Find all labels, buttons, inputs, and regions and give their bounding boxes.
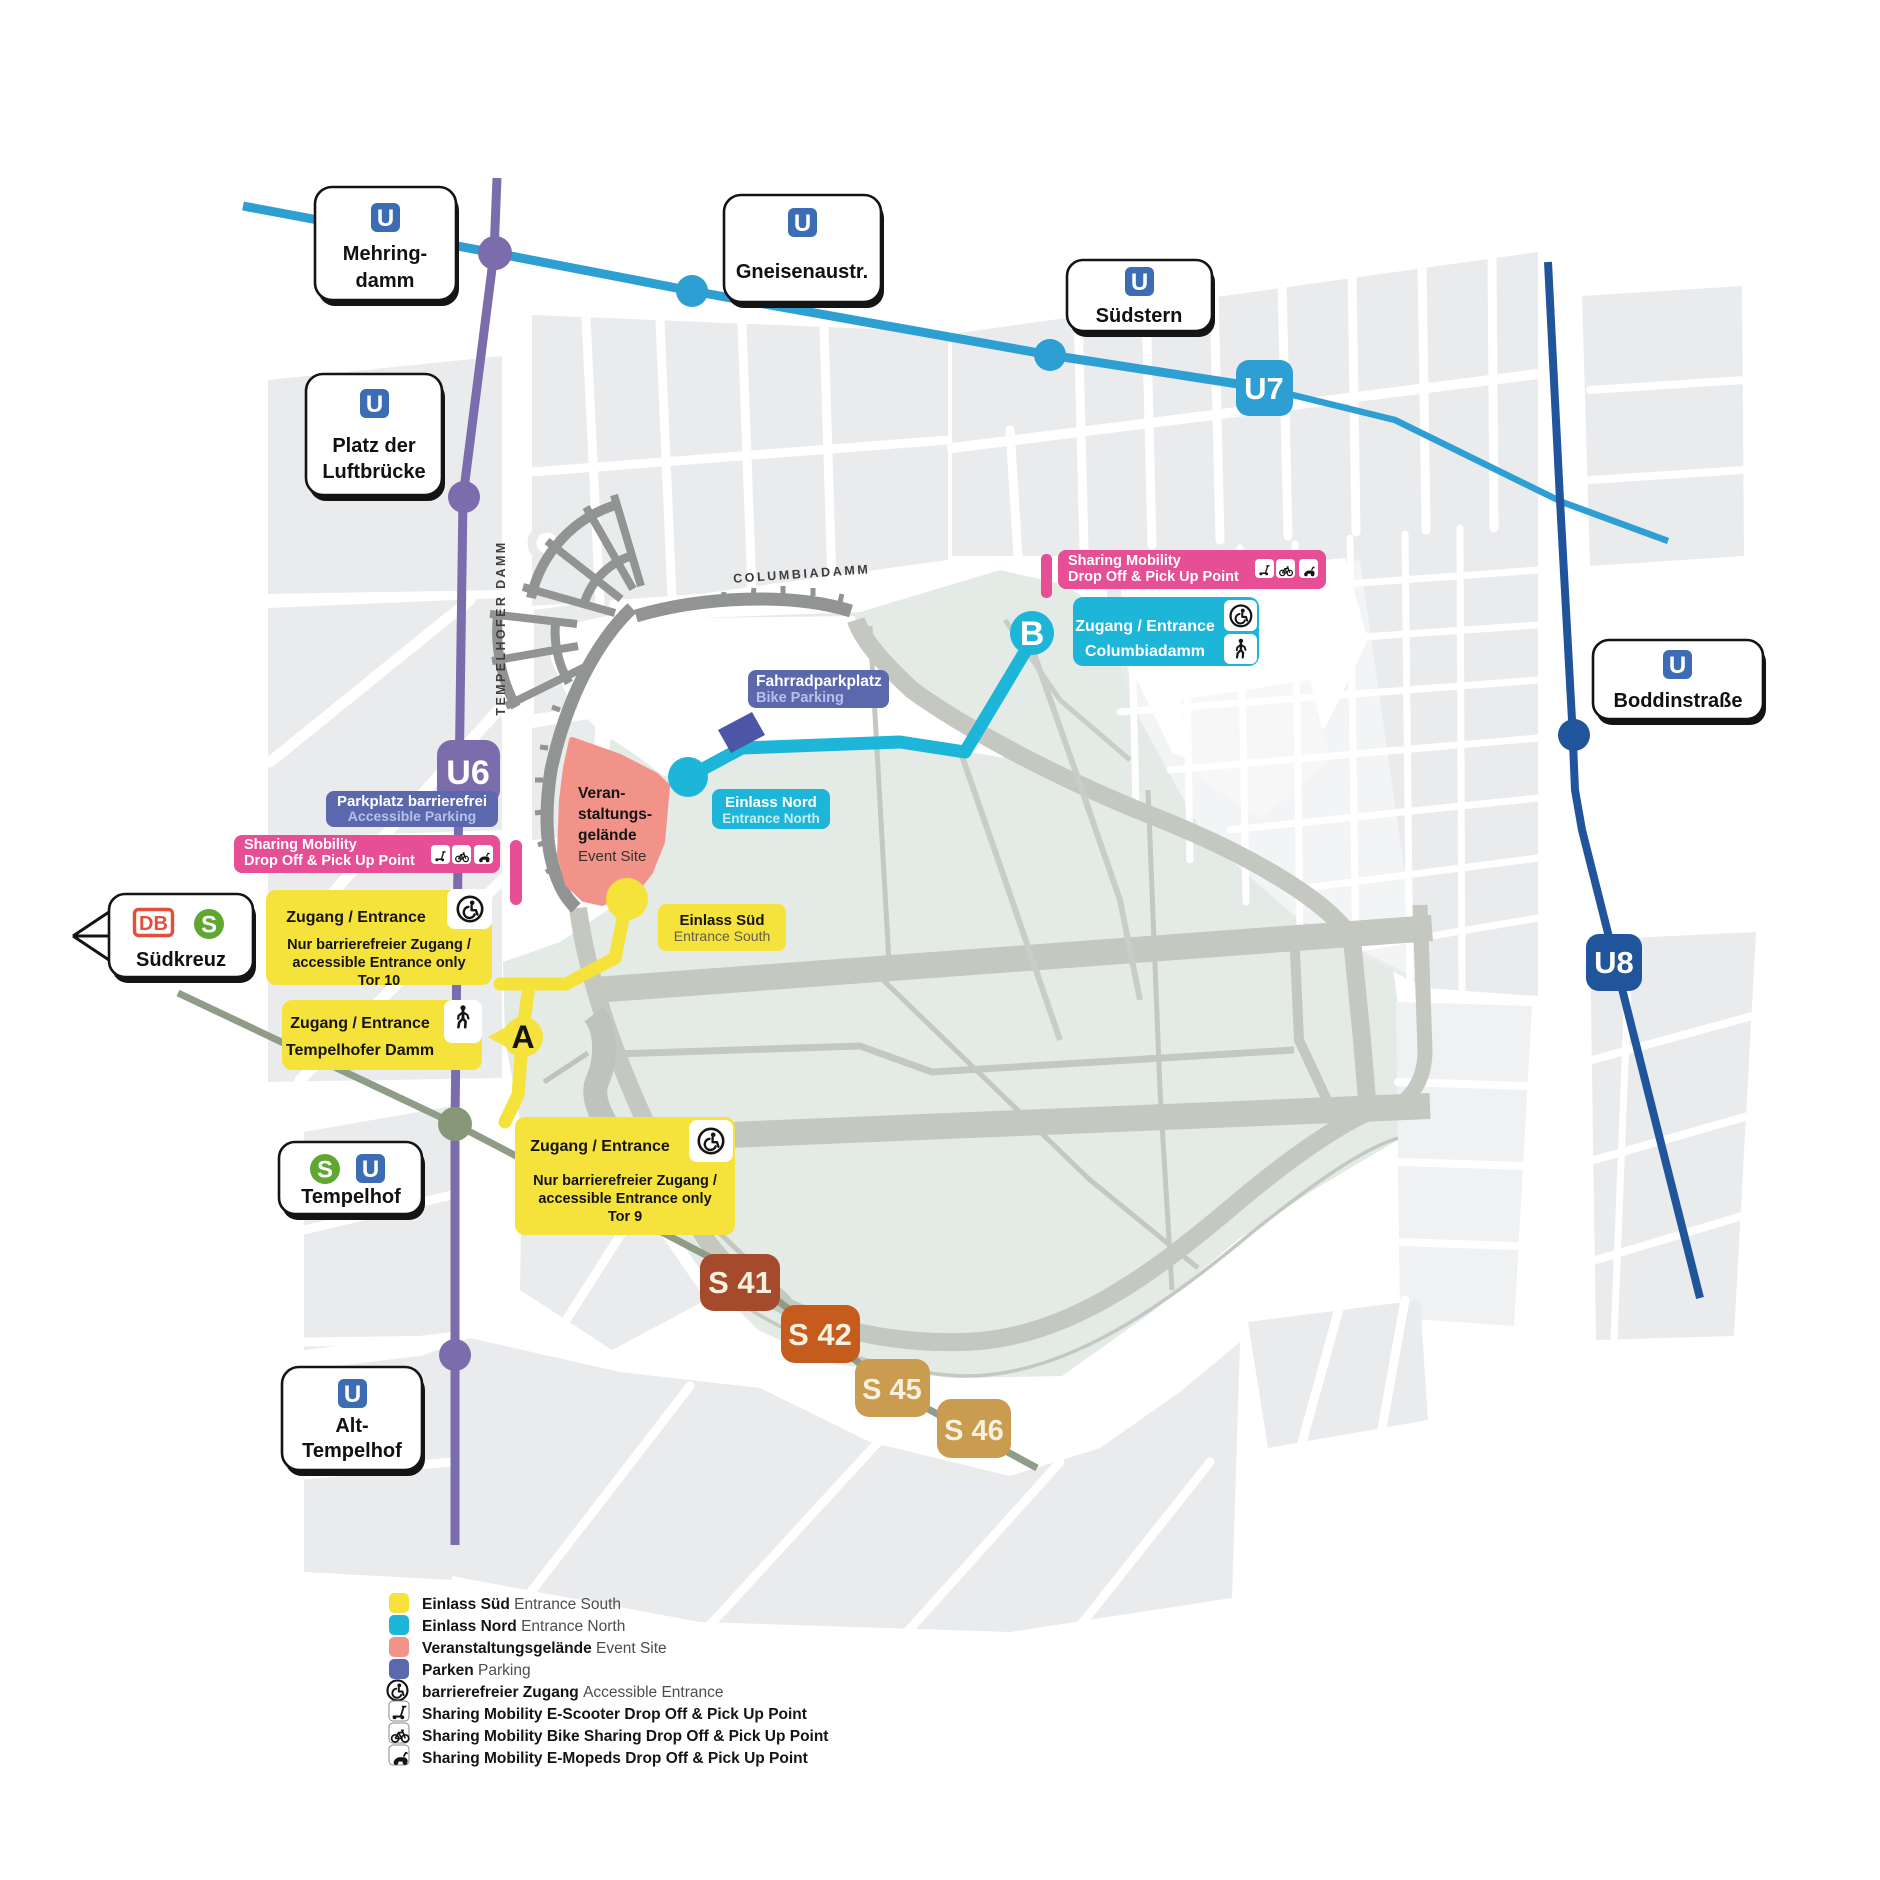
svg-text:Event Site: Event Site: [578, 848, 646, 865]
svg-text:Veranstaltungsgelände Event Si: Veranstaltungsgelände Event Site: [422, 1640, 667, 1657]
svg-text:Alt-: Alt-: [335, 1415, 368, 1437]
svg-text:Südstern: Südstern: [1096, 305, 1183, 327]
svg-text:Einlass Nord Entrance North: Einlass Nord Entrance North: [422, 1618, 625, 1635]
svg-text:Tempelhof: Tempelhof: [301, 1186, 401, 1208]
svg-text:accessible Entrance only: accessible Entrance only: [292, 955, 465, 971]
svg-text:damm: damm: [356, 270, 415, 292]
svg-text:Sharing Mobility Bike Sharing: Sharing Mobility Bike Sharing Drop Off &…: [422, 1728, 828, 1745]
svg-text:Columbiadamm: Columbiadamm: [1085, 643, 1205, 660]
svg-text:Entrance South: Entrance South: [674, 928, 771, 944]
svg-text:Fahrradparkplatz: Fahrradparkplatz: [756, 673, 882, 690]
svg-text:S 46: S 46: [944, 1415, 1004, 1447]
svg-text:Einlass Nord: Einlass Nord: [725, 794, 817, 811]
svg-text:Boddinstraße: Boddinstraße: [1614, 690, 1743, 712]
svg-text:S 45: S 45: [862, 1374, 922, 1406]
svg-text:Veran-: Veran-: [578, 785, 625, 802]
svg-text:Platz der: Platz der: [332, 435, 416, 457]
svg-text:Südkreuz: Südkreuz: [136, 949, 226, 971]
svg-text:Sharing Mobility E-Mopeds Drop: Sharing Mobility E-Mopeds Drop Off & Pic…: [422, 1750, 808, 1767]
svg-text:Bike Parking: Bike Parking: [756, 690, 844, 706]
svg-text:Gneisenaustr.: Gneisenaustr.: [736, 261, 868, 283]
svg-text:gelände: gelände: [578, 827, 637, 844]
svg-text:Tor 9: Tor 9: [608, 1209, 642, 1225]
svg-text:S 41: S 41: [708, 1265, 772, 1300]
svg-text:Luftbrücke: Luftbrücke: [322, 461, 425, 483]
svg-text:Accessible Parking: Accessible Parking: [348, 808, 476, 824]
svg-text:Nur barrierefreier Zugang /: Nur barrierefreier Zugang /: [287, 937, 471, 953]
svg-text:S 42: S 42: [788, 1317, 852, 1352]
svg-text:Einlass Süd: Einlass Süd: [679, 912, 764, 929]
svg-text:Zugang / Entrance: Zugang / Entrance: [530, 1138, 670, 1155]
svg-text:U7: U7: [1244, 371, 1284, 406]
svg-text:Sharing Mobility: Sharing Mobility: [1068, 553, 1181, 569]
svg-text:TEMPELHOFER DAMM: TEMPELHOFER DAMM: [494, 540, 508, 715]
svg-text:accessible Entrance only: accessible Entrance only: [538, 1191, 711, 1207]
svg-text:Sharing Mobility E-Scooter Dro: Sharing Mobility E-Scooter Drop Off & Pi…: [422, 1706, 807, 1723]
svg-text:Entrance North: Entrance North: [722, 811, 820, 826]
svg-text:staltungs-: staltungs-: [578, 806, 652, 823]
svg-text:Sharing Mobility: Sharing Mobility: [244, 837, 357, 853]
svg-text:Parken Parking: Parken Parking: [422, 1662, 531, 1679]
svg-text:Zugang / Entrance: Zugang / Entrance: [1075, 618, 1215, 635]
svg-text:Mehring-: Mehring-: [343, 243, 427, 265]
svg-text:Drop Off & Pick Up Point: Drop Off & Pick Up Point: [1068, 569, 1239, 585]
svg-text:A: A: [511, 1019, 534, 1055]
svg-text:Tempelhof: Tempelhof: [302, 1440, 402, 1462]
svg-text:U6: U6: [446, 754, 489, 792]
svg-text:B: B: [1020, 615, 1045, 653]
svg-text:Tor 10: Tor 10: [358, 973, 400, 989]
svg-text:Tempelhofer Damm: Tempelhofer Damm: [286, 1042, 434, 1059]
svg-text:Zugang / Entrance: Zugang / Entrance: [286, 909, 426, 926]
svg-text:Einlass Süd Entrance South: Einlass Süd Entrance South: [422, 1596, 621, 1613]
svg-text:barrierefreier Zugang Accessib: barrierefreier Zugang Accessible Entranc…: [422, 1684, 724, 1701]
svg-text:Nur barrierefreier Zugang /: Nur barrierefreier Zugang /: [533, 1173, 717, 1189]
svg-text:Zugang / Entrance: Zugang / Entrance: [290, 1015, 430, 1032]
svg-text:Drop Off & Pick Up Point: Drop Off & Pick Up Point: [244, 853, 415, 869]
svg-text:U8: U8: [1594, 945, 1634, 980]
